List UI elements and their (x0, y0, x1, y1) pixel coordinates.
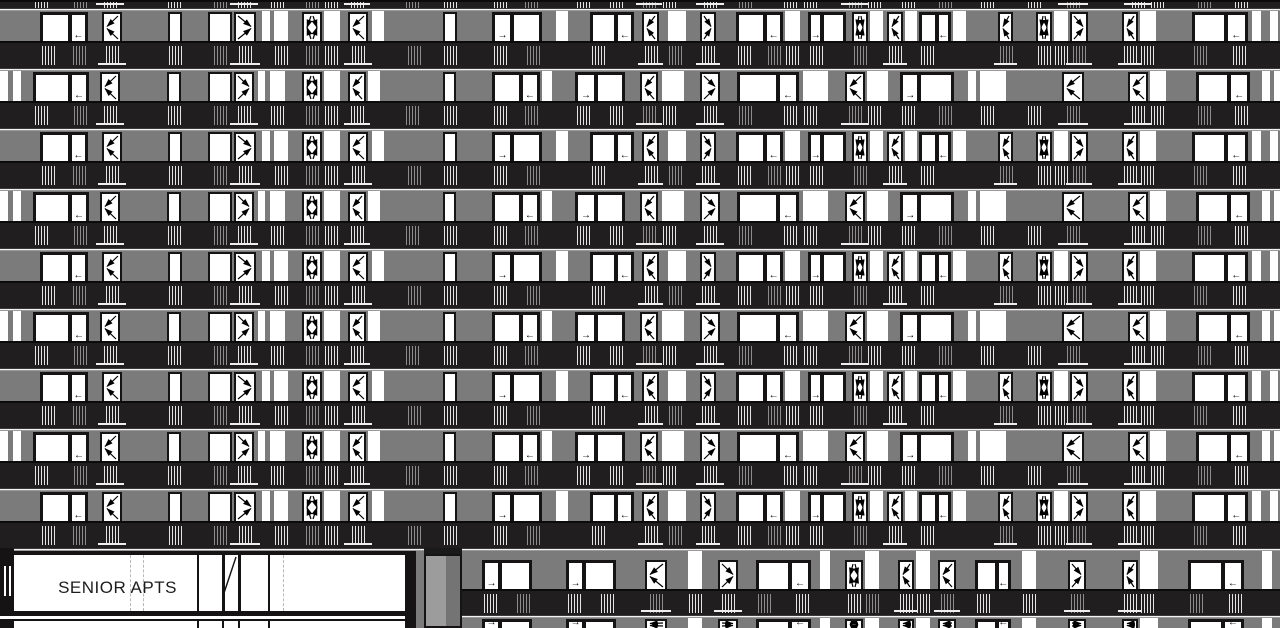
window-pane (445, 194, 454, 221)
window: ← (33, 192, 89, 221)
railing-hatch (444, 286, 457, 305)
casement-swing-icon (236, 254, 254, 281)
window: → (900, 432, 954, 461)
narrow-window (443, 72, 456, 101)
door-threshold-line (1124, 363, 1152, 365)
door-leaf (1070, 621, 1084, 628)
slide-arrow-icon: ← (998, 618, 1008, 628)
window-pane (210, 194, 230, 221)
balcony-door (642, 492, 659, 521)
floor-wall: ←←→←→← (0, 191, 1280, 221)
glazing-panel (324, 191, 340, 221)
railing-hatch (214, 46, 227, 65)
window-pane (445, 134, 455, 161)
glazing-panel (870, 371, 883, 401)
balcony-door (1122, 132, 1138, 161)
window-pane (210, 434, 230, 461)
railing-hatch (804, 466, 817, 485)
balcony-door (1070, 372, 1088, 401)
railing-hatch (786, 286, 799, 305)
railing-hatch (306, 346, 319, 365)
casement-swing-icon (304, 254, 320, 281)
door-threshold-line (1066, 543, 1092, 545)
casement-swing-icon (1038, 14, 1050, 41)
balcony-door (852, 372, 868, 401)
railing-hatch (35, 346, 48, 365)
balcony-door (1122, 12, 1138, 41)
slide-arrow-icon: ← (73, 511, 83, 521)
window: ← (40, 492, 88, 521)
glazing-panel (668, 491, 686, 521)
floor-wall: ←→←←→←← (0, 251, 1280, 281)
casement-swing-icon (702, 14, 714, 41)
railing-hatch (768, 166, 781, 185)
railing-hatch (525, 466, 538, 485)
glazing-panel (980, 311, 1006, 341)
door-leaf (1130, 74, 1146, 101)
door-leaf (847, 434, 863, 461)
casement-swing-icon (1072, 494, 1086, 521)
glazing-panel (258, 311, 265, 341)
glazing-panel (1252, 131, 1261, 161)
slide-arrow-icon: ← (769, 151, 779, 161)
window: → (492, 372, 542, 401)
glazing-panel (13, 71, 21, 101)
balcony-door (998, 132, 1013, 161)
casement-swing-icon (1124, 134, 1136, 161)
slide-arrow-icon: ← (1234, 331, 1244, 341)
railing-hatch (902, 226, 915, 245)
railing-hatch (854, 46, 867, 65)
balcony-door (1128, 72, 1148, 101)
railing-hatch (1038, 406, 1051, 425)
door-threshold-line (1124, 3, 1152, 5)
railing-hatch (1038, 286, 1051, 305)
door-leaf (854, 254, 866, 281)
glazing-panel (1262, 551, 1272, 589)
balcony-door (845, 619, 863, 628)
railing-hatch (494, 226, 507, 245)
door-leaf (1000, 494, 1011, 521)
railing-hatch (408, 166, 421, 185)
door-threshold-line (636, 123, 662, 125)
railing-hatch (854, 166, 867, 185)
casement-swing-icon (1072, 134, 1086, 161)
casement-swing-icon (1072, 254, 1086, 281)
railing-hatch (306, 226, 319, 245)
casement-swing-icon (847, 314, 863, 341)
door-leaf (350, 14, 366, 41)
glazing-panel (870, 251, 883, 281)
window-pane (495, 315, 519, 341)
slide-arrow-icon: → (811, 271, 821, 281)
balcony-door (898, 619, 914, 628)
window: ← (33, 312, 89, 341)
casement-swing-icon (304, 434, 320, 461)
window-pane (210, 494, 230, 521)
casement-swing-icon (702, 314, 718, 341)
railing-hatch (1233, 286, 1246, 305)
balcony-door (1068, 560, 1086, 589)
balcony-railing-band (0, 101, 1280, 128)
door-leaf (350, 254, 366, 281)
door-threshold-line (344, 543, 372, 545)
glazing-panel (785, 11, 800, 41)
balcony-railing-band (0, 221, 1280, 248)
casement-swing-icon (1130, 314, 1146, 341)
slide-arrow-icon: → (498, 511, 508, 521)
railing-hatch (1194, 406, 1207, 425)
railing-hatch (902, 466, 915, 485)
window: → (808, 12, 846, 41)
railing-hatch (921, 526, 934, 545)
door-leaf (854, 134, 866, 161)
railing-hatch (444, 106, 457, 125)
railing-hatch (784, 346, 797, 365)
window: ← (756, 560, 811, 589)
casement-swing-icon (304, 14, 320, 41)
balcony-door (642, 372, 659, 401)
narrow-window (168, 132, 182, 161)
slide-arrow-icon: ← (620, 271, 630, 281)
window-pane (495, 75, 519, 101)
glazing-panel (1140, 251, 1156, 281)
balcony-door (102, 372, 122, 401)
casement-swing-icon (702, 194, 718, 221)
door-threshold-line (230, 303, 260, 305)
window-pane (36, 195, 68, 221)
glazing-panel (1274, 311, 1280, 341)
railing-hatch (921, 406, 934, 425)
railing-hatch (663, 226, 676, 245)
railing-hatch (35, 226, 48, 245)
glazing-panel (980, 191, 1006, 221)
balcony-door (998, 372, 1013, 401)
window-pane (598, 75, 622, 101)
door-leaf (1038, 14, 1050, 41)
railing-hatch (275, 166, 288, 185)
floor-wall: ←←→←→← (0, 431, 1280, 461)
balcony-railing-band (0, 41, 1280, 68)
casement-swing-icon (1000, 254, 1011, 281)
glazing-panel (953, 11, 966, 41)
railing-hatch (902, 346, 915, 365)
glazing-panel (803, 431, 828, 461)
door-threshold-line (230, 123, 258, 125)
railing-hatch (214, 526, 227, 545)
railing-hatch (325, 526, 338, 545)
glazing-panel (0, 191, 8, 221)
railing-hatch (325, 406, 338, 425)
railing-hatch (42, 166, 55, 185)
casement-swing-icon (350, 194, 364, 221)
window-pane (586, 563, 613, 589)
door-threshold-line (994, 183, 1017, 185)
balcony-door (700, 372, 716, 401)
slide-arrow-icon: ← (783, 91, 793, 101)
balcony-door (102, 252, 122, 281)
casement-swing-icon (1070, 562, 1084, 589)
slide-arrow-icon: ← (1234, 211, 1244, 221)
door-leaf (1064, 314, 1082, 341)
railing-hatch (494, 346, 507, 365)
door-leaf (104, 14, 120, 41)
casement-swing-icon (940, 621, 954, 628)
window: ← (492, 432, 540, 461)
railing-hatch (939, 106, 952, 125)
glazing-panel (274, 131, 288, 161)
glazing-panel (905, 11, 917, 41)
railing-hatch (271, 226, 284, 245)
balcony-door (100, 432, 120, 461)
slide-arrow-icon: ← (769, 511, 779, 521)
railing-hatch (669, 166, 682, 185)
door-threshold-line (883, 63, 907, 65)
window-pane (445, 14, 455, 41)
railing-hatch (739, 106, 752, 125)
door-threshold-line (344, 483, 370, 485)
balcony-door (234, 192, 254, 221)
door-threshold-line (934, 610, 960, 612)
floor-wall: ←→←←→←← (0, 131, 1280, 161)
balcony-door (1062, 192, 1084, 221)
door-leaf (304, 494, 320, 521)
railing-hatch (577, 226, 590, 245)
railing-hatch (738, 406, 751, 425)
glazing-panel (968, 431, 976, 461)
narrow-window (208, 432, 232, 461)
balcony-door (1122, 372, 1138, 401)
railing-hatch (271, 106, 284, 125)
glazing-panel (1270, 11, 1278, 41)
door-leaf (236, 14, 254, 41)
casement-swing-icon (102, 314, 118, 341)
door-leaf (854, 14, 866, 41)
railing-hatch (168, 466, 181, 485)
window-pane (978, 622, 995, 628)
slide-arrow-icon: ← (73, 151, 83, 161)
window-pane (739, 135, 763, 161)
railing-hatch (1151, 346, 1164, 365)
narrow-window (208, 192, 232, 221)
railing-hatch (168, 346, 181, 365)
door-leaf (102, 194, 118, 221)
railing-hatch (810, 526, 823, 545)
glazing-panel (262, 251, 270, 281)
railing-hatch (214, 286, 227, 305)
glazing-panel (785, 371, 800, 401)
balcony-railing-band (454, 589, 1280, 615)
slide-arrow-icon: ← (525, 211, 535, 221)
casement-swing-icon (940, 562, 954, 589)
door-leaf (900, 621, 912, 628)
railing-hatch (758, 594, 771, 613)
slide-arrow-icon: ← (998, 579, 1008, 589)
window: → (575, 312, 625, 341)
railing-hatch (739, 346, 752, 365)
slide-arrow-icon: → (905, 91, 915, 101)
storefront-lower-glazing (14, 621, 405, 628)
railing-hatch (804, 226, 817, 245)
door-leaf (1130, 314, 1146, 341)
railing-hatch (494, 46, 507, 65)
railing-hatch (484, 594, 497, 613)
railing-hatch (406, 466, 419, 485)
storefront-mullion (268, 621, 270, 628)
casement-swing-icon (854, 14, 866, 41)
balcony-door (845, 192, 865, 221)
slide-arrow-icon: → (811, 391, 821, 401)
door-leaf (847, 621, 861, 628)
glazing-panel (662, 191, 684, 221)
balcony-door (887, 492, 903, 521)
door-threshold-line (1064, 610, 1090, 612)
railing-hatch (1190, 594, 1203, 613)
railing-hatch (1233, 526, 1246, 545)
casement-swing-icon (847, 562, 861, 589)
window-pane (495, 435, 519, 461)
balcony-door (845, 432, 865, 461)
railing-hatch (1235, 346, 1248, 365)
door-threshold-line (696, 183, 720, 185)
casement-swing-icon (236, 14, 254, 41)
railing-hatch (981, 106, 994, 125)
glazing-panel (905, 491, 917, 521)
window: ← (40, 372, 88, 401)
glazing-panel (688, 618, 702, 628)
casement-swing-icon (1064, 74, 1082, 101)
glazing-panel (1270, 131, 1278, 161)
railing-hatch (1028, 106, 1041, 125)
railing-hatch (325, 106, 338, 125)
casement-swing-icon (236, 314, 252, 341)
glazing-panel (270, 71, 285, 101)
window: ← (736, 372, 783, 401)
door-threshold-line (994, 423, 1017, 425)
door-leaf (889, 134, 901, 161)
narrow-window (168, 492, 182, 521)
door-threshold-line (696, 423, 720, 425)
window: ← (1188, 619, 1244, 628)
railing-hatch (1141, 46, 1154, 65)
door-leaf (102, 74, 118, 101)
slide-arrow-icon: → (571, 579, 581, 589)
slide-arrow-icon: → (498, 271, 508, 281)
floor-wall: ←→←←→←← (0, 491, 1280, 521)
balcony-door (234, 492, 256, 521)
door-leaf (1072, 494, 1086, 521)
door-leaf (1064, 434, 1082, 461)
railing-hatch (1141, 526, 1154, 545)
railing-hatch (854, 406, 867, 425)
railing-hatch (739, 226, 752, 245)
glazing-panel (803, 71, 828, 101)
window-pane (1199, 195, 1227, 221)
window-pane (170, 14, 180, 41)
door-leaf (702, 374, 714, 401)
slide-arrow-icon: → (905, 331, 915, 341)
balcony-railing-band (0, 341, 1280, 368)
door-threshold-line (883, 423, 907, 425)
floor-wall: ←←→←→← (0, 71, 1280, 101)
railing-hatch (525, 226, 538, 245)
railing-hatch (1028, 226, 1041, 245)
door-leaf (236, 374, 254, 401)
narrow-window (167, 432, 181, 461)
narrow-window (443, 192, 456, 221)
door-threshold-line (1118, 610, 1142, 612)
storefront-mullion (238, 555, 241, 611)
railing-hatch (275, 46, 288, 65)
balcony-door (938, 560, 956, 589)
door-threshold-line (230, 423, 260, 425)
door-threshold-line (230, 363, 258, 365)
glazing-panel (1054, 11, 1068, 41)
casement-swing-icon (304, 134, 320, 161)
slide-arrow-icon: ← (74, 451, 84, 461)
casement-swing-icon (847, 621, 861, 628)
glazing-panel (262, 131, 270, 161)
casement-swing-icon (104, 14, 120, 41)
window: → (575, 192, 625, 221)
window: ← (919, 252, 951, 281)
glazing-panel (542, 431, 552, 461)
window-pane (1195, 255, 1224, 281)
railing-hatch (306, 286, 319, 305)
casement-swing-icon (642, 74, 656, 101)
casement-swing-icon (104, 374, 120, 401)
glazing-panel (556, 131, 568, 161)
casement-swing-icon (644, 254, 657, 281)
window-pane (824, 495, 843, 521)
door-leaf (1000, 134, 1011, 161)
door-threshold-line (1124, 123, 1152, 125)
railing-hatch (169, 526, 182, 545)
railing-hatch (494, 166, 507, 185)
door-threshold-line (96, 123, 124, 125)
balcony-door (1070, 12, 1088, 41)
door-leaf (702, 314, 718, 341)
door-threshold-line (96, 363, 124, 365)
railing-hatch (1151, 466, 1164, 485)
casement-swing-icon (1124, 14, 1136, 41)
window: → (482, 619, 532, 628)
storefront-mullion (197, 621, 199, 628)
door-leaf (350, 194, 364, 221)
slide-arrow-icon: ← (1234, 451, 1244, 461)
slide-arrow-icon: → (487, 579, 497, 589)
window-pane (921, 435, 951, 461)
balcony-door (1036, 252, 1052, 281)
storefront-sign-text: SENIOR APTS (30, 573, 205, 603)
railing-hatch (1151, 226, 1164, 245)
door-leaf (1064, 194, 1082, 221)
casement-swing-icon (854, 254, 866, 281)
slide-arrow-icon: → (581, 91, 591, 101)
railing-hatch (42, 406, 55, 425)
slide-arrow-icon: ← (769, 271, 779, 281)
window-pane (740, 435, 776, 461)
slide-arrow-icon: ← (73, 391, 83, 401)
slide-arrow-icon: ← (525, 91, 535, 101)
window: ← (590, 12, 634, 41)
door-leaf (304, 434, 320, 461)
railing-hatch (1151, 106, 1164, 125)
slide-arrow-icon: → (498, 151, 508, 161)
railing-hatch (525, 346, 538, 365)
railing-hatch (214, 346, 227, 365)
door-leaf (350, 314, 364, 341)
